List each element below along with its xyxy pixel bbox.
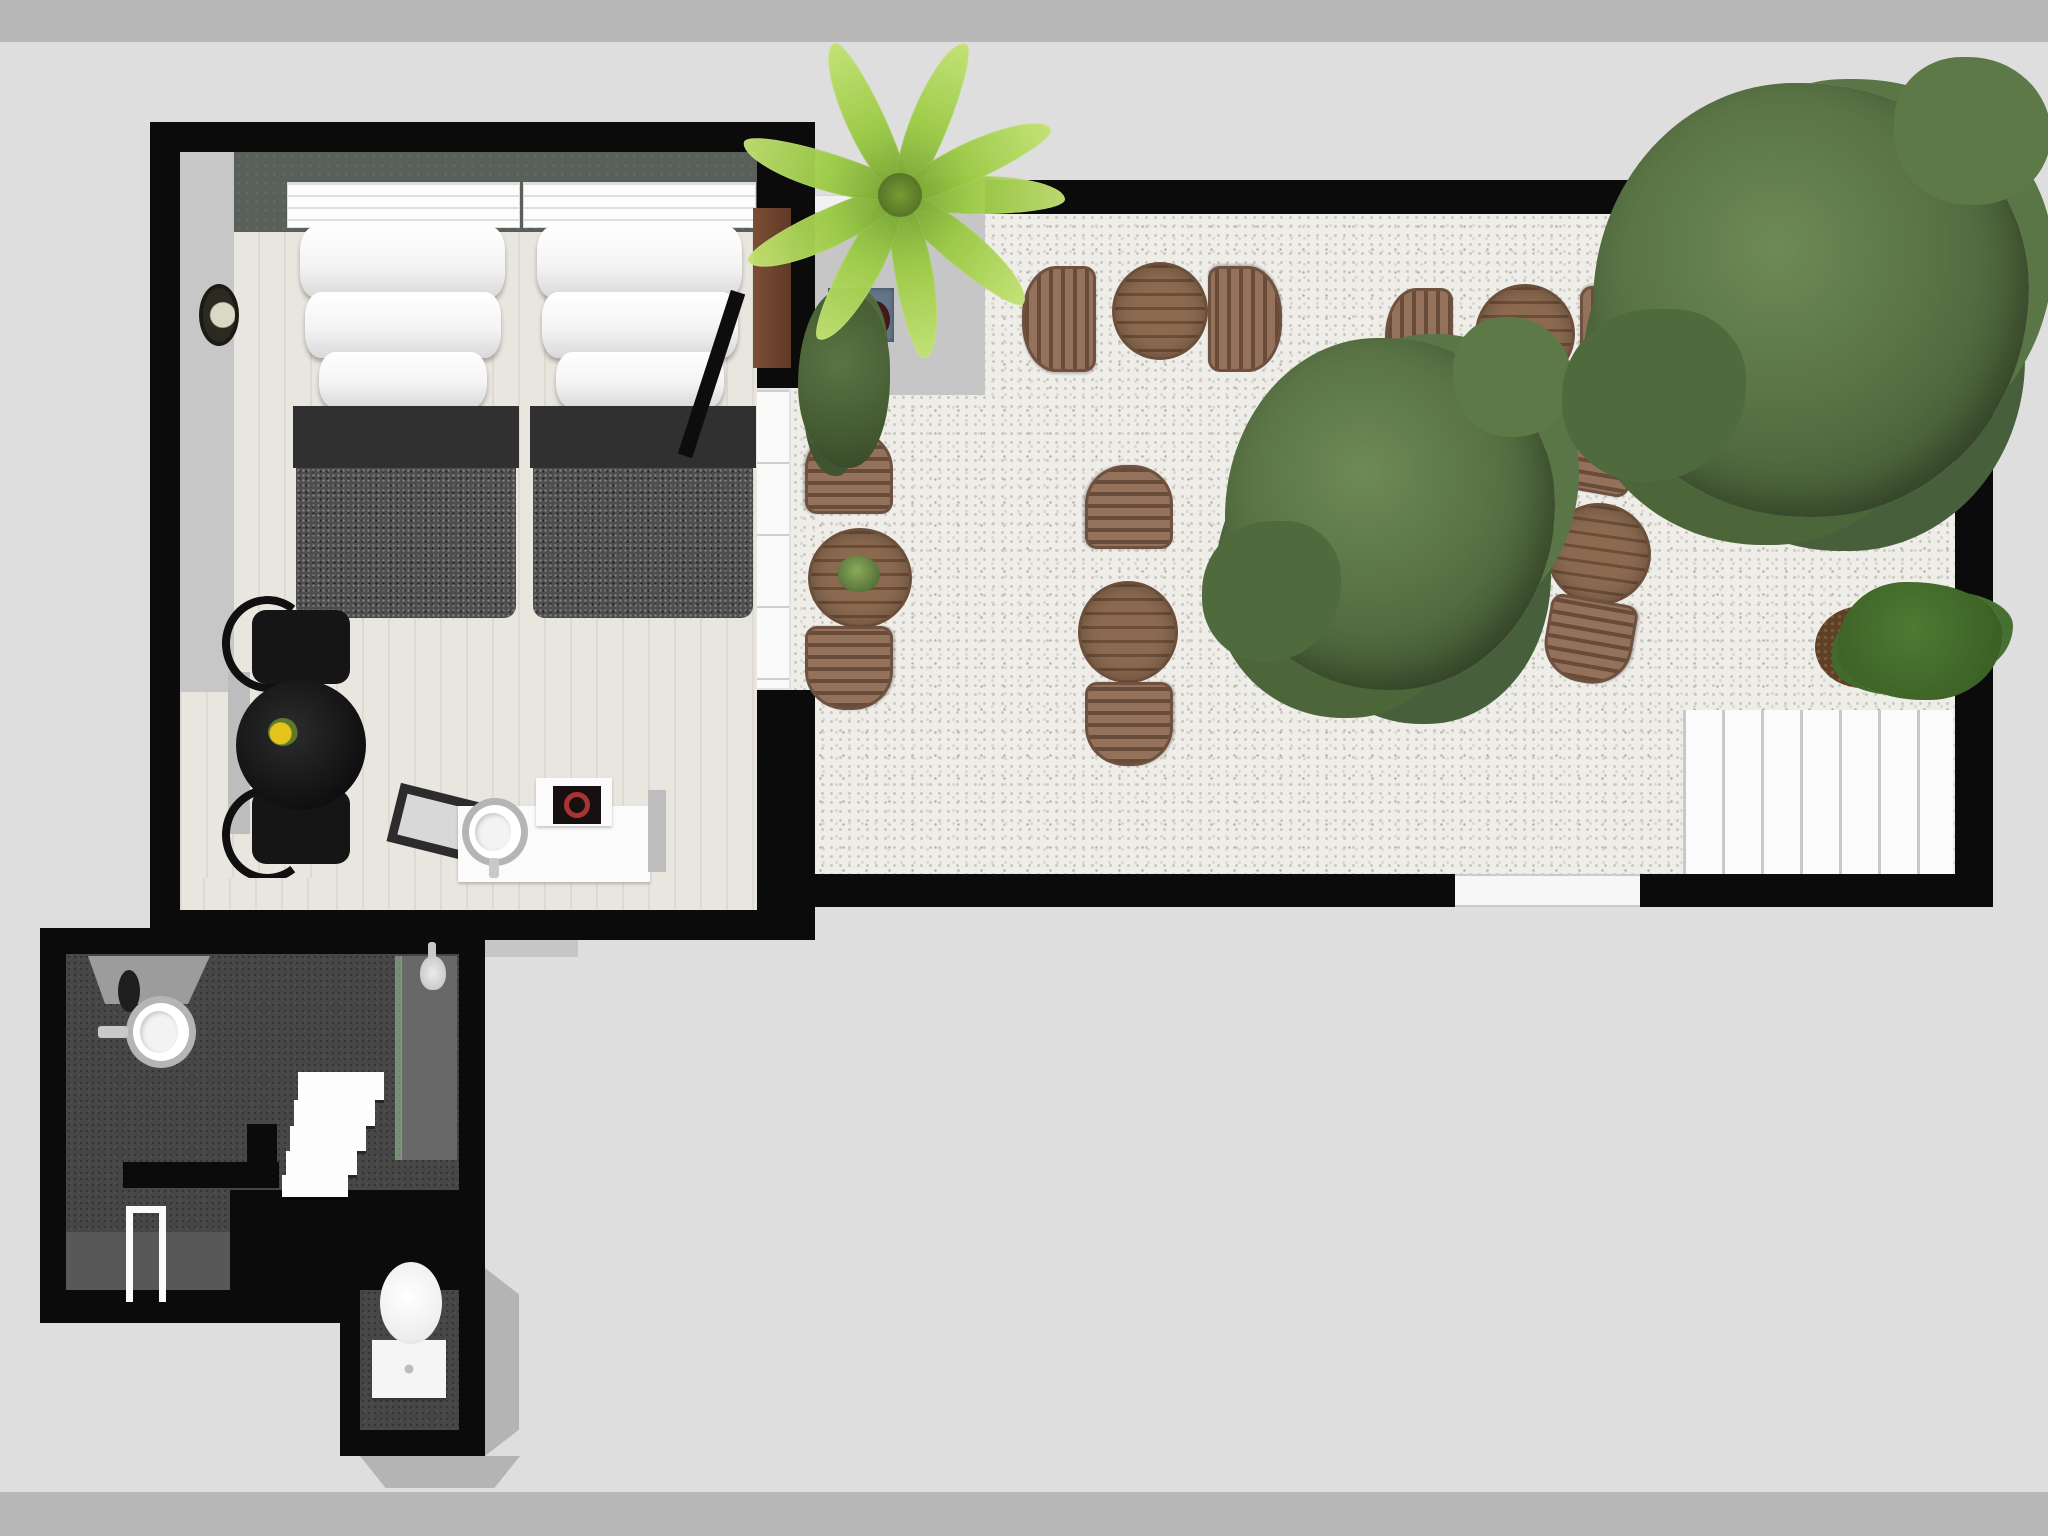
palm-core	[878, 173, 922, 217]
toilet-bowl	[380, 1262, 442, 1344]
bed-right-valance	[523, 182, 756, 228]
patio-door-opening	[1455, 874, 1640, 907]
patio-table	[1078, 581, 1178, 683]
patio-white-deck	[1683, 710, 1953, 876]
tree-top-right	[1593, 83, 2029, 517]
patio-chair	[1208, 266, 1282, 372]
patio-chair	[1085, 465, 1173, 549]
open-door-frame	[126, 1206, 166, 1302]
flower-vase	[268, 718, 298, 746]
pillow	[305, 292, 501, 358]
pillow	[300, 226, 505, 298]
bed-left-duvet	[296, 468, 516, 618]
patio-chair	[1022, 266, 1096, 372]
cabinet-screen	[553, 786, 601, 824]
stair-step	[282, 1175, 348, 1197]
table-plant	[838, 556, 880, 592]
floor-plan-viewport	[0, 0, 2048, 1536]
shower-glass	[395, 956, 402, 1160]
bed-left-valance	[287, 182, 520, 228]
stair-step	[294, 1100, 375, 1126]
pillow	[319, 352, 487, 408]
bath-bench	[123, 1162, 279, 1188]
bed-right-fold	[530, 406, 756, 468]
pillow	[542, 292, 738, 358]
vanity-faucet	[489, 858, 499, 878]
patio-wall-bottom-right	[1640, 874, 1993, 907]
stair-step	[298, 1072, 384, 1100]
patio-table	[1112, 262, 1208, 360]
black-round-table	[236, 680, 366, 810]
bed-right-duvet	[533, 468, 753, 618]
tree-center	[1225, 338, 1555, 690]
pillow	[537, 226, 742, 298]
door-post	[648, 790, 666, 872]
vanity-sink	[462, 798, 528, 866]
bed-left-fold	[293, 406, 519, 468]
floor-plan-canvas	[0, 0, 2048, 1536]
patio-wall-bottom-left	[788, 874, 1455, 907]
patio-chair	[805, 626, 893, 710]
bathroom-face-bottom	[360, 1456, 520, 1488]
bath-faucet	[98, 1026, 128, 1038]
toilet-tank	[372, 1340, 446, 1398]
bedroom-window-band	[753, 388, 791, 690]
bath-sink	[126, 996, 196, 1068]
corner-shrub	[1838, 582, 2003, 700]
patio-chair	[1085, 682, 1173, 766]
stair-step	[286, 1151, 357, 1175]
bedroom-left-wall-face	[180, 152, 234, 692]
black-chair	[252, 610, 350, 684]
bathroom-face-right	[485, 1268, 519, 1456]
stair-step	[290, 1126, 366, 1151]
shower-head	[420, 956, 446, 990]
wall-clock	[199, 284, 239, 346]
bedroom-bath-passage	[203, 878, 329, 910]
